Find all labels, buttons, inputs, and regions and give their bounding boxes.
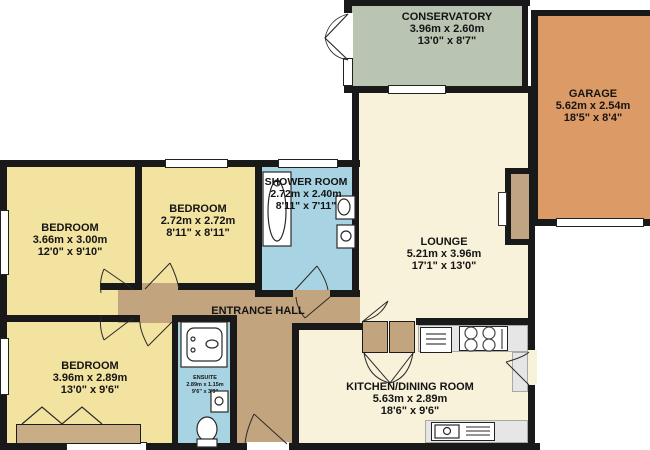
wall (0, 160, 7, 450)
door-leaf (389, 321, 415, 353)
room-name: CONSERVATORY (363, 11, 531, 23)
room-name: GARAGE (536, 88, 650, 100)
room-dims-metric: 5.62m x 2.54m (536, 100, 650, 112)
wall (172, 315, 178, 450)
wall (230, 315, 237, 450)
chimney-inner (511, 174, 529, 239)
room-dims-metric: 5.63m x 2.89m (300, 393, 520, 405)
room-dims-metric: 5.21m x 3.96m (358, 248, 530, 260)
room-dims-imperial: 12'0" x 9'10" (4, 246, 136, 258)
wall (345, 0, 530, 6)
wall (531, 10, 650, 16)
room-dims-metric: 2.72m x 2.72m (139, 215, 257, 227)
window (388, 85, 446, 94)
room-dims-imperial: 13'0" x 9'6" (10, 384, 170, 396)
wall (292, 323, 299, 450)
label-bedroom-left: BEDROOM 3.66m x 3.00m 12'0" x 9'10" (4, 222, 136, 258)
room-dims-metric: 3.66m x 3.00m (4, 234, 136, 246)
room-name: ENSUITE (179, 375, 231, 382)
room-name: BEDROOM (4, 222, 136, 234)
room-dims-imperial: 18'6" x 9'6" (300, 405, 520, 417)
room-name: BEDROOM (10, 360, 170, 372)
garage-door (556, 218, 644, 227)
room-dims-imperial: 18'5" x 8'4" (536, 112, 650, 124)
window (165, 159, 228, 168)
label-lounge: LOUNGE 5.21m x 3.96m 17'1" x 13'0" (358, 236, 530, 272)
label-entrance-hall: ENTRANCE HALL (150, 305, 366, 317)
door-leaf (362, 321, 388, 353)
oven-icon (420, 327, 452, 353)
wall (416, 318, 531, 325)
room-hall-corridor (237, 315, 292, 444)
door-opening (293, 290, 330, 297)
label-garage: GARAGE 5.62m x 2.54m 18'5" x 8'4" (536, 88, 650, 124)
label-kitchen: KITCHEN/DINING ROOM 5.63m x 2.89m 18'6" … (300, 381, 520, 417)
door-opening (343, 13, 353, 59)
room-name: ENTRANCE HALL (150, 305, 366, 317)
wall (100, 283, 260, 290)
window (343, 58, 353, 86)
room-name: SHOWER ROOM (254, 176, 358, 188)
room-name: BEDROOM (139, 203, 257, 215)
room-dims-imperial: 9'6" x 3'9" (179, 389, 231, 396)
room-dims-metric: 2.72m x 2.40m (254, 188, 358, 200)
room-name: KITCHEN/DINING ROOM (300, 381, 520, 393)
hob-icon (459, 326, 508, 351)
wall (292, 323, 364, 330)
room-name: LOUNGE (358, 236, 530, 248)
door-opening (528, 350, 537, 385)
front-door-opening (247, 442, 289, 450)
room-dims-metric: 3.96m x 2.60m (363, 23, 531, 35)
floorplan: CONSERVATORY 3.96m x 2.60m 13'0" x 8'7" … (0, 0, 650, 450)
wall (528, 385, 535, 450)
fireplace-hearth (498, 192, 507, 226)
window (278, 159, 338, 168)
wardrobe (16, 424, 141, 444)
sink-unit-icon (431, 422, 495, 441)
label-conservatory: CONSERVATORY 3.96m x 2.60m 13'0" x 8'7" (363, 11, 531, 47)
room-dims-imperial: 13'0" x 8'7" (363, 35, 531, 47)
label-bedroom-mid: BEDROOM 2.72m x 2.72m 8'11" x 8'11" (139, 203, 257, 239)
room-dims-metric: 3.96m x 2.89m (10, 372, 170, 384)
room-dims-metric: 2.89m x 1.15m (179, 382, 231, 389)
label-ensuite: ENSUITE 2.89m x 1.15m 9'6" x 3'9" (179, 375, 231, 396)
label-shower-room: SHOWER ROOM 2.72m x 2.40m 8'11" x 7'11" (254, 176, 358, 212)
room-dims-imperial: 17'1" x 13'0" (358, 260, 530, 272)
room-dims-imperial: 8'11" x 8'11" (139, 227, 257, 239)
room-dims-imperial: 8'11" x 7'11" (254, 200, 358, 212)
window (0, 338, 9, 395)
label-bedroom-bottom: BEDROOM 3.96m x 2.89m 13'0" x 9'6" (10, 360, 170, 396)
door-opening (142, 283, 178, 290)
